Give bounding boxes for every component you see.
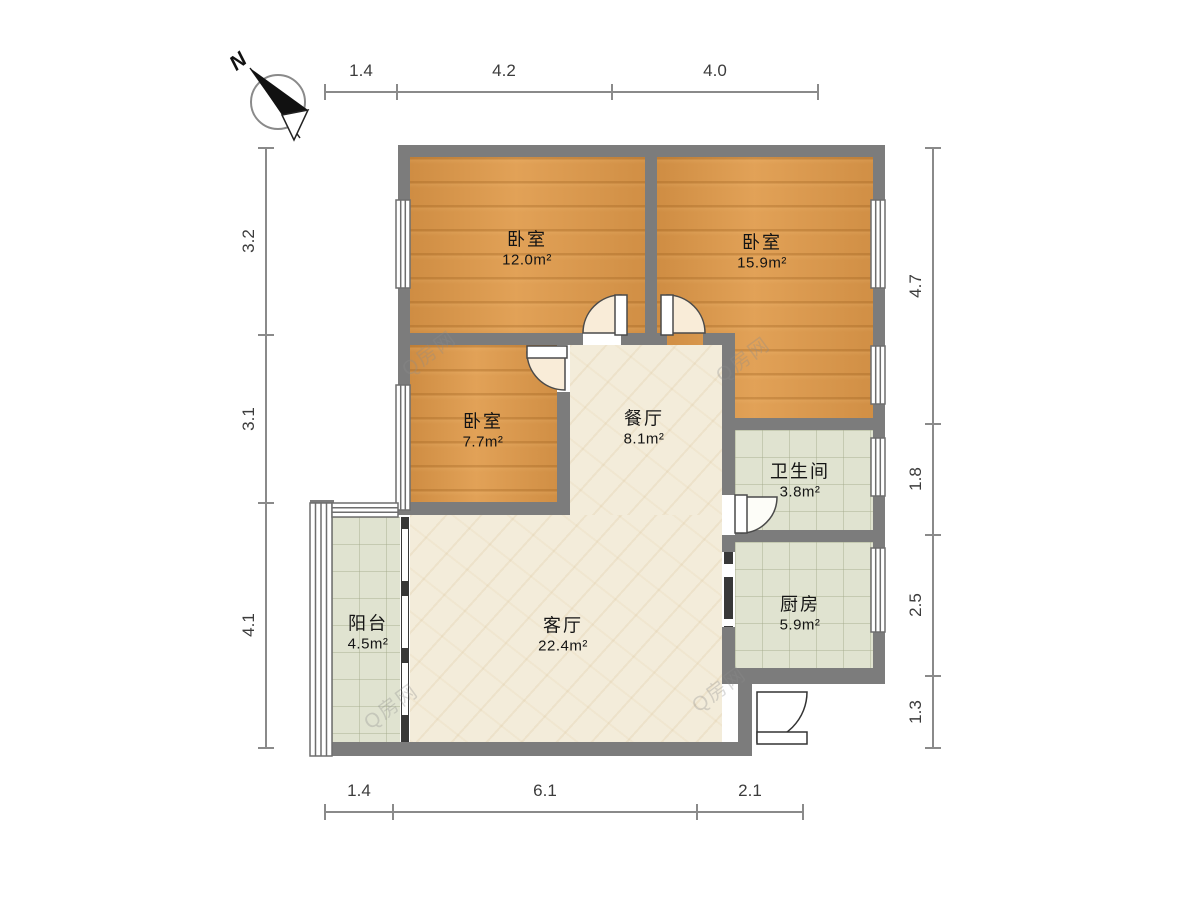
room-area: 5.9m² <box>780 616 821 635</box>
ruler-left <box>258 148 274 748</box>
label-bedroom-2: 卧室 15.9m² <box>737 231 787 272</box>
dim-left-3: 4.1 <box>239 613 259 637</box>
ruler-top <box>325 84 818 100</box>
dim-right-3: 2.5 <box>906 593 926 617</box>
window-balcony-top <box>332 503 398 517</box>
room-area: 3.8m² <box>770 483 830 502</box>
label-bathroom: 卫生间 3.8m² <box>770 460 830 501</box>
room-name: 卧室 <box>737 231 787 254</box>
label-living: 客厅 22.4m² <box>538 614 588 655</box>
room-area: 7.7m² <box>463 433 504 452</box>
label-balcony: 阳台 4.5m² <box>348 612 389 653</box>
wall-bath-kitchen <box>735 530 885 542</box>
label-dining: 餐厅 8.1m² <box>624 407 665 448</box>
kitchen-door-panel-2 <box>724 619 733 626</box>
compass-north-label: N <box>225 48 252 76</box>
dim-top-2: 4.2 <box>492 61 516 81</box>
room-area: 4.5m² <box>348 635 389 654</box>
label-bedroom-3: 卧室 7.7m² <box>463 410 504 451</box>
room-name: 阳台 <box>348 612 389 635</box>
dim-left-2: 3.1 <box>239 407 259 431</box>
room-name: 卧室 <box>502 228 552 251</box>
wall-right <box>873 145 885 684</box>
wall-balcony-corner <box>310 500 334 517</box>
dim-bottom-3: 2.1 <box>738 781 762 801</box>
kitchen-door-panel-1 <box>724 564 733 577</box>
label-bedroom-1: 卧室 12.0m² <box>502 228 552 269</box>
dim-top-1: 1.4 <box>349 61 373 81</box>
room-name: 客厅 <box>538 614 588 637</box>
label-kitchen: 厨房 5.9m² <box>780 593 821 634</box>
window-balcony-left <box>310 503 332 756</box>
compass-icon <box>250 68 308 140</box>
room-area: 15.9m² <box>737 254 787 273</box>
dim-right-1: 4.7 <box>906 274 926 298</box>
wall-entry-stub <box>738 684 752 744</box>
dim-top-3: 4.0 <box>703 61 727 81</box>
wall-bottom <box>332 742 752 756</box>
wall-top <box>398 145 885 157</box>
wall-hall-east-2 <box>722 535 735 552</box>
wall-left <box>398 145 410 515</box>
dim-bottom-1: 1.4 <box>347 781 371 801</box>
door-entry <box>757 692 807 744</box>
dim-right-2: 1.8 <box>906 467 926 491</box>
wall-bed3-bottom <box>398 502 570 515</box>
wall-mid-seg2 <box>621 333 667 345</box>
room-name: 卫生间 <box>770 460 830 483</box>
wall-bed3-east <box>557 392 570 515</box>
wall-bed1-bed2 <box>645 157 657 333</box>
balcony-door-panel-1 <box>402 529 408 581</box>
dim-bottom-2: 6.1 <box>533 781 557 801</box>
ruler-bottom <box>325 804 803 820</box>
room-area: 12.0m² <box>502 251 552 270</box>
room-name: 卧室 <box>463 410 504 433</box>
wall-bed2-bottom <box>722 418 885 430</box>
room-area: 8.1m² <box>624 430 665 449</box>
dim-left-1: 3.2 <box>239 229 259 253</box>
balcony-door-panel-2 <box>402 596 408 648</box>
dim-right-4: 1.3 <box>906 700 926 724</box>
room-name: 餐厅 <box>624 407 665 430</box>
floor-plan: N 卧室 12.0m² 卧室 15.9m² 卧室 7.7m² 餐厅 8.1m² … <box>0 0 1200 900</box>
room-area: 22.4m² <box>538 637 588 656</box>
room-name: 厨房 <box>780 593 821 616</box>
ruler-right <box>925 148 941 748</box>
